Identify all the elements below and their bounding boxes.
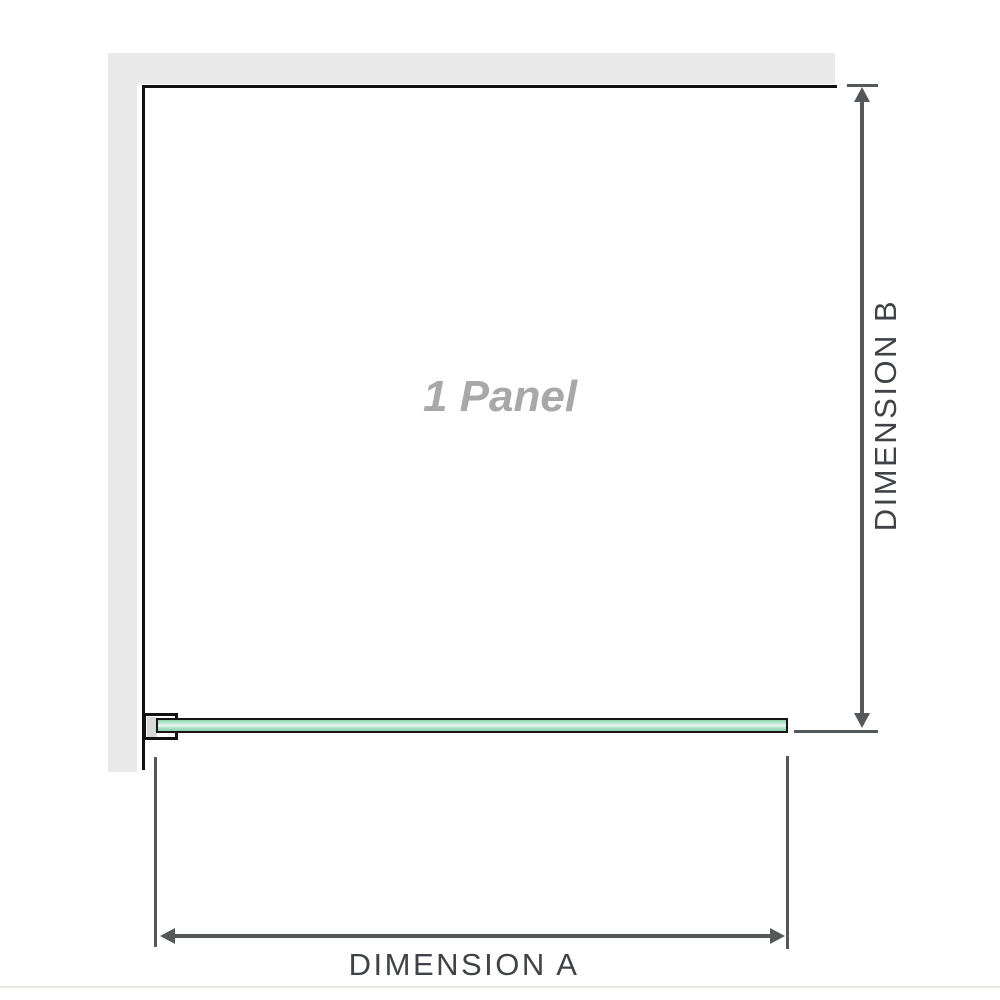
arrow-up-icon xyxy=(854,87,870,102)
panel-label: 1 Panel xyxy=(423,372,577,422)
dimension-b-line xyxy=(860,101,864,715)
panel-left-edge xyxy=(142,85,145,770)
wall-top xyxy=(108,53,835,84)
panel-dimension-diagram: 1 Panel DIMENSION B DIMENSION A xyxy=(0,0,1000,1000)
arrow-left-icon xyxy=(160,928,175,944)
arrow-right-icon xyxy=(770,928,785,944)
arrow-down-icon xyxy=(854,713,870,728)
panel-top-edge xyxy=(142,85,837,88)
dimension-a-label: DIMENSION A xyxy=(349,947,580,983)
dimension-b-tick-bottom xyxy=(794,730,878,733)
wall-left xyxy=(108,53,137,772)
extension-line-right xyxy=(786,756,789,949)
baseline-rule xyxy=(0,986,1000,988)
dimension-a-line xyxy=(173,934,772,938)
glass-panel xyxy=(156,718,788,733)
dimension-b-label: DIMENSION B xyxy=(868,299,904,531)
extension-line-left xyxy=(154,757,157,947)
